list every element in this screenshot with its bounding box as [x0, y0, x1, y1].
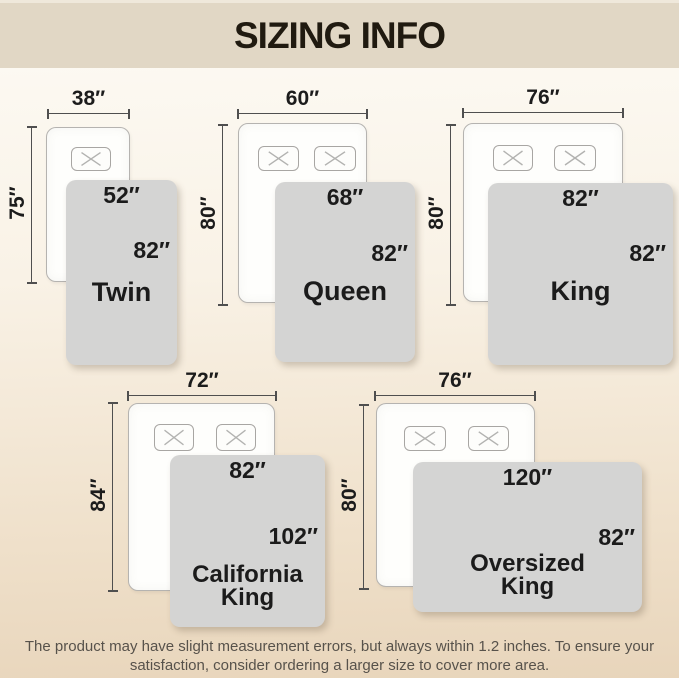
disclaimer-text: The product may have slight measurement …	[20, 637, 660, 675]
bed-width-dim-label: 38″	[72, 87, 105, 111]
header-band: SIZING INFO	[0, 0, 679, 68]
bed-length-dimension-line: 80″	[222, 125, 223, 305]
pillow-x-icon	[494, 146, 532, 170]
bed-width-dim-label: 60″	[286, 87, 319, 111]
blanket-name-label: Oversized King	[443, 552, 613, 598]
blanket-name-label: King	[488, 276, 673, 307]
blanket-length-label: 82″	[371, 240, 408, 267]
bed-length-dim-label: 80″	[197, 177, 221, 249]
bed-length-dimension-line: 80″	[450, 125, 451, 305]
blanket-width-label: 68″	[275, 184, 415, 211]
blanket-length-label: 82″	[598, 524, 635, 551]
blanket-name-label: Queen	[275, 276, 415, 307]
bed-width-dim-label: 72″	[185, 369, 218, 393]
pillow-x-icon	[217, 425, 255, 450]
blanket-length-label: 82″	[133, 237, 170, 264]
blanket-overlay: 120″ 82″ Oversized King	[413, 462, 642, 612]
bed-width-dimension-line: 38″	[48, 113, 129, 114]
blanket-width-label: 52″	[66, 182, 177, 209]
bed-width-dimension-line: 76″	[375, 395, 535, 396]
bed-length-dimension-line: 80″	[363, 405, 364, 589]
sizing-info-graphic: SIZING INFO 38″ 75″ 52″ 82″ Twin 60″ 80″	[0, 0, 679, 678]
pillow-icon	[216, 424, 256, 451]
pillow-x-icon	[469, 427, 508, 450]
bed-length-dimension-line: 84″	[112, 403, 113, 591]
blanket-name-label: California King	[170, 563, 325, 609]
bed-width-dimension-line: 72″	[128, 395, 276, 396]
blanket-overlay: 52″ 82″ Twin	[66, 180, 177, 365]
bed-width-dimension-line: 76″	[463, 112, 623, 113]
blanket-width-label: 82″	[488, 185, 673, 212]
bed-width-dimension-line: 60″	[238, 113, 367, 114]
bed-width-dim-label: 76″	[526, 86, 559, 110]
pillow-x-icon	[315, 147, 355, 170]
blanket-width-label: 120″	[413, 464, 642, 491]
bed-length-dimension-line: 75″	[31, 127, 32, 283]
blanket-width-label: 82″	[170, 457, 325, 484]
bed-length-dim-label: 84″	[87, 459, 111, 531]
pillow-x-icon	[72, 148, 110, 170]
pillow-icon	[554, 145, 596, 171]
bed-length-dim-label: 80″	[338, 459, 362, 531]
page-title: SIZING INFO	[234, 15, 445, 57]
bed-width-dim-label: 76″	[438, 369, 471, 393]
pillow-icon	[154, 424, 194, 451]
disclaimer-footer: The product may have slight measurement …	[0, 637, 679, 675]
blanket-length-label: 102″	[269, 523, 318, 550]
pillow-icon	[404, 426, 446, 451]
blanket-overlay: 82″ 82″ King	[488, 183, 673, 365]
pillow-icon	[493, 145, 533, 171]
blanket-overlay: 82″ 102″ California King	[170, 455, 325, 627]
blanket-overlay: 68″ 82″ Queen	[275, 182, 415, 362]
blanket-name-label: Twin	[66, 277, 177, 308]
pillow-icon	[314, 146, 356, 171]
pillow-icon	[468, 426, 509, 451]
bed-length-dim-label: 80″	[425, 177, 449, 249]
pillow-x-icon	[405, 427, 445, 450]
pillow-icon	[258, 146, 299, 171]
pillow-x-icon	[155, 425, 193, 450]
pillow-icon	[71, 147, 111, 171]
blanket-length-label: 82″	[629, 240, 666, 267]
pillow-x-icon	[259, 147, 298, 170]
bed-length-dim-label: 75″	[6, 167, 30, 239]
pillow-x-icon	[555, 146, 595, 170]
